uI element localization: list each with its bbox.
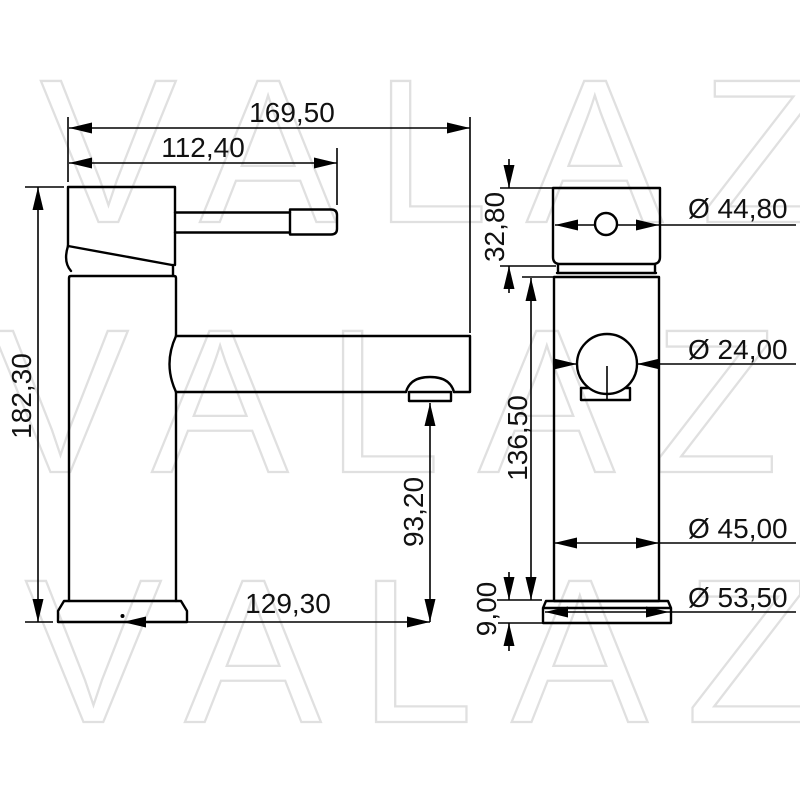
dim-body-diameter: Ø 45,00	[554, 513, 796, 549]
dim-base-height-label: 9,00	[471, 582, 502, 637]
watermark: VALAZ VALAZ VALAZ	[0, 37, 800, 766]
indicator-dot	[595, 213, 617, 235]
axis-tick	[121, 614, 125, 618]
dim-spout-diameter-label: Ø 24,00	[688, 334, 788, 365]
dim-head-diameter-label: Ø 44,80	[688, 193, 788, 224]
watermark-row-3: VALAZ	[25, 537, 800, 766]
dim-body-height-label: 136,50	[502, 395, 533, 481]
dim-head-height-label: 32,80	[479, 192, 510, 262]
faucet-dimension-drawing: VALAZ VALAZ VALAZ 169,50 112,40 182,30	[0, 0, 800, 800]
dim-handle-reach-label: 112,40	[161, 132, 245, 163]
dim-body-diameter-label: Ø 45,00	[688, 513, 788, 544]
dim-base-diameter-label: Ø 53,50	[688, 582, 788, 613]
dim-spout-reach-label: 129,30	[245, 588, 331, 619]
technical-drawing-page: VALAZ VALAZ VALAZ 169,50 112,40 182,30	[0, 0, 800, 800]
watermark-row-1: VALAZ	[40, 37, 800, 266]
dim-overall-width-label: 169,50	[249, 97, 335, 128]
dim-overall-height-label: 182,30	[6, 353, 37, 439]
dim-outlet-height-label: 93,20	[398, 477, 429, 547]
